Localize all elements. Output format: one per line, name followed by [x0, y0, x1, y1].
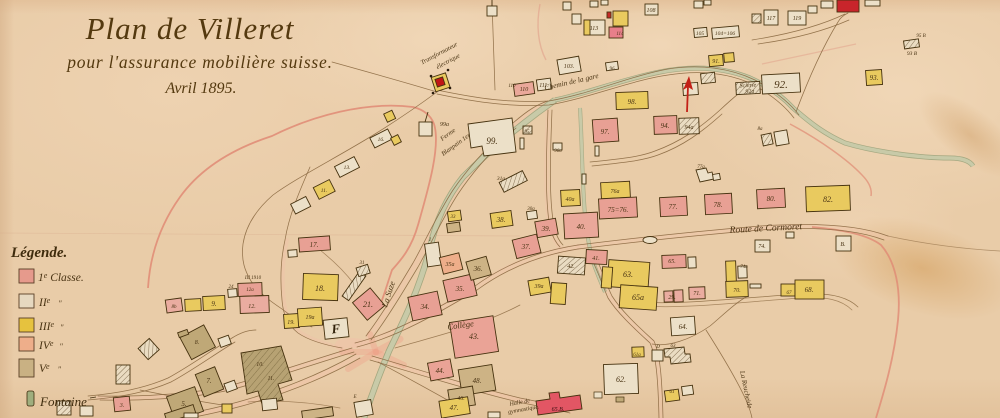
svg-text:8b: 8b — [172, 305, 178, 310]
svg-text:Avril 1895.: Avril 1895. — [164, 80, 236, 97]
svg-text:13.: 13. — [344, 165, 351, 171]
svg-text:40.: 40. — [577, 223, 586, 231]
svg-text:119: 119 — [793, 16, 802, 22]
svg-text:61a: 61a — [633, 353, 641, 358]
svg-text:77a: 77a — [697, 165, 705, 170]
svg-text:16.: 16. — [378, 137, 385, 143]
svg-text:103.: 103. — [564, 64, 575, 70]
svg-text:III 1910: III 1910 — [244, 276, 262, 281]
svg-text:24: 24 — [229, 285, 235, 290]
svg-text:111.: 111. — [539, 83, 549, 89]
svg-text:42.: 42. — [567, 263, 575, 270]
svg-text:95 B: 95 B — [916, 34, 925, 39]
svg-text:62.: 62. — [616, 375, 626, 384]
svg-text:39.: 39. — [541, 225, 551, 233]
svg-text:B.: B. — [840, 242, 845, 248]
svg-text:29.: 29. — [668, 295, 676, 301]
svg-text:41.: 41. — [592, 255, 600, 262]
svg-text:95: 95 — [525, 130, 531, 135]
svg-text:93 B: 93 B — [907, 51, 918, 57]
svg-text:38.: 38. — [496, 216, 506, 224]
svg-text:104=106: 104=106 — [715, 30, 735, 37]
svg-text:46.: 46. — [457, 395, 465, 402]
svg-text:18.: 18. — [315, 284, 325, 293]
svg-text:98.: 98. — [628, 98, 637, 106]
svg-text:33: 33 — [451, 215, 457, 220]
svg-text:36.: 36. — [473, 265, 483, 273]
svg-text:Légende.: Légende. — [10, 245, 67, 261]
svg-text:31: 31 — [360, 261, 365, 266]
svg-text:19a: 19a — [306, 315, 315, 321]
svg-text:65.: 65. — [668, 259, 676, 265]
svg-text:34.: 34. — [420, 303, 430, 311]
svg-text:78.: 78. — [714, 201, 723, 209]
svg-text:21.: 21. — [363, 300, 373, 309]
svg-text:82.: 82. — [823, 195, 833, 204]
svg-text:12a: 12a — [246, 288, 254, 293]
svg-text:77.: 77. — [669, 203, 678, 211]
svg-text:74.: 74. — [758, 243, 766, 250]
svg-text:43.: 43. — [469, 332, 479, 341]
svg-text:99.: 99. — [486, 136, 497, 146]
svg-text:10.: 10. — [256, 362, 264, 368]
svg-text:96: 96 — [610, 67, 616, 72]
svg-text:67: 67 — [787, 291, 793, 296]
svg-text:63.: 63. — [623, 270, 633, 279]
svg-text:F: F — [330, 321, 342, 337]
svg-text:92.: 92. — [774, 79, 788, 91]
svg-text:5.: 5. — [181, 400, 187, 408]
svg-text:94a: 94a — [685, 124, 694, 131]
svg-text:E: E — [352, 395, 356, 400]
svg-text:64.: 64. — [679, 323, 688, 331]
svg-text:8a: 8a — [758, 127, 764, 132]
svg-text:Plan de Villeret: Plan de Villeret — [85, 11, 295, 46]
svg-text:7.: 7. — [206, 377, 212, 385]
svg-text:48.: 48. — [473, 377, 482, 385]
svg-text:35.: 35. — [455, 285, 465, 293]
svg-text:113: 113 — [590, 26, 599, 32]
svg-text:97.: 97. — [601, 128, 610, 136]
svg-text:70.: 70. — [733, 288, 741, 294]
svg-text:pour l'assurance mobilière sui: pour l'assurance mobilière suisse. — [65, 52, 333, 72]
svg-text:30a: 30a — [527, 207, 535, 212]
svg-text:37.: 37. — [521, 243, 531, 251]
svg-text:31a: 31a — [496, 176, 506, 182]
svg-text:108: 108 — [647, 8, 656, 14]
svg-text:65.B.: 65.B. — [552, 407, 565, 413]
svg-text:93.: 93. — [870, 74, 879, 82]
svg-text:71.: 71. — [693, 291, 701, 297]
svg-text:D: D — [655, 345, 660, 350]
svg-text:9.: 9. — [211, 300, 217, 308]
svg-text:11.: 11. — [267, 376, 274, 382]
svg-text:3.: 3. — [119, 403, 125, 409]
svg-text:76a: 76a — [611, 189, 620, 195]
svg-text:99a: 99a — [440, 122, 449, 128]
svg-text:47.: 47. — [450, 404, 459, 412]
svg-text:19.: 19. — [287, 320, 295, 326]
svg-text:17.: 17. — [310, 241, 319, 249]
svg-text:92a: 92a — [745, 89, 754, 95]
svg-text:96a: 96a — [554, 149, 562, 154]
svg-text:63: 63 — [671, 344, 677, 349]
svg-text:Fontaine: Fontaine — [39, 394, 87, 409]
svg-text:35a: 35a — [445, 262, 455, 268]
svg-text:44.: 44. — [436, 367, 445, 375]
svg-text:39a: 39a — [534, 284, 544, 290]
svg-text:8.: 8. — [195, 340, 200, 346]
svg-text:75=76.: 75=76. — [608, 206, 629, 214]
svg-text:114: 114 — [616, 32, 624, 37]
svg-text:12.: 12. — [248, 304, 256, 310]
svg-text:91.: 91. — [712, 59, 720, 65]
svg-text:40a: 40a — [566, 196, 575, 203]
svg-text:68.: 68. — [805, 286, 814, 294]
svg-text:I: I — [428, 238, 431, 243]
svg-text:110: 110 — [520, 87, 529, 93]
svg-text:11.: 11. — [321, 188, 327, 194]
svg-text:117: 117 — [767, 16, 777, 22]
svg-text:65a: 65a — [632, 293, 644, 302]
svg-text:74a: 74a — [740, 265, 748, 270]
svg-text:61: 61 — [670, 390, 675, 395]
svg-text:110: 110 — [508, 84, 516, 89]
svg-text:105: 105 — [696, 31, 705, 37]
svg-text:80.: 80. — [767, 195, 776, 203]
svg-text:94.: 94. — [661, 122, 670, 130]
